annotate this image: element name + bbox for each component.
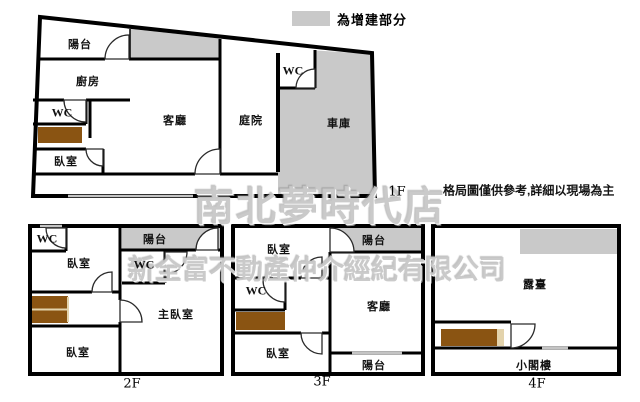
- room-label-3f-bedroom-top: 臥室: [267, 241, 291, 257]
- legend-swatch: [292, 11, 330, 26]
- door-2f-wc-mid: [165, 252, 187, 274]
- room-label-4f-terrace: 露臺: [523, 276, 547, 292]
- floor-label-1f: 1F: [388, 185, 405, 200]
- door-1f-bedroom: [86, 149, 103, 166]
- door-2f-bedroom-top: [92, 272, 112, 292]
- room-label-3f-wc: WC: [246, 284, 267, 299]
- floorplan-canvas: 南北夢時代店 新全富不動產仲介經紀有限公司 為增建部分 格局圖僅供參考,詳細以現…: [0, 0, 640, 402]
- door-3f-bedroom-bottom: [301, 333, 322, 354]
- disclaimer-text: 格局圖僅供參考,詳細以現場為主: [443, 182, 614, 199]
- legend-label: 為增建部分: [337, 10, 407, 29]
- room-label-2f-balcony: 陽台: [143, 231, 167, 247]
- door-4f-stairs: [511, 324, 535, 348]
- room-label-1f-wc-left: WC: [52, 106, 73, 121]
- room-label-4f-attic: 小閣樓: [516, 357, 552, 373]
- terrace-addition-fill: [520, 229, 617, 254]
- room-label-1f-garage: 車庫: [327, 115, 351, 131]
- floor-label-2f: 2F: [123, 377, 140, 392]
- room-label-1f-kitchen: 廚房: [76, 73, 100, 89]
- door-1f-living: [195, 149, 220, 174]
- floor-label-3f: 3F: [313, 375, 330, 390]
- room-label-3f-balcony-bottom: 陽台: [362, 357, 386, 373]
- room-label-3f-balcony-top: 陽台: [362, 232, 386, 248]
- floor-label-4f: 4F: [528, 377, 545, 392]
- floor-4f-walls: [433, 226, 619, 374]
- room-label-2f-master: 主臥室: [158, 306, 194, 322]
- floor-3f-walls: [233, 226, 423, 374]
- door-1f-balcony: [105, 35, 129, 59]
- room-label-1f-living: 客廳: [163, 112, 187, 128]
- floor-2f-walls: [30, 226, 222, 374]
- room-label-2f-bedroom-top: 臥室: [67, 255, 91, 271]
- room-label-2f-bedroom-bottom: 臥室: [66, 344, 90, 360]
- door-2f-master: [120, 300, 142, 322]
- door-3f-bedroom-top: [301, 257, 322, 278]
- room-label-2f-wc-top: WC: [37, 232, 58, 247]
- room-label-1f-bedroom: 臥室: [54, 153, 78, 169]
- room-label-1f-balcony: 陽台: [68, 36, 92, 52]
- room-label-3f-living: 客廳: [367, 298, 391, 314]
- stairs-3f: [236, 312, 285, 330]
- room-label-1f-wc-yard: WC: [283, 64, 304, 79]
- room-label-2f-wc-mid: WC: [134, 258, 155, 273]
- room-label-1f-courtyard: 庭院: [239, 112, 263, 128]
- stairs-1f: [38, 127, 82, 143]
- stairs-4f: [441, 329, 497, 346]
- floorplan-graphics: [0, 0, 640, 402]
- room-label-3f-bedroom-bottom: 臥室: [266, 345, 290, 361]
